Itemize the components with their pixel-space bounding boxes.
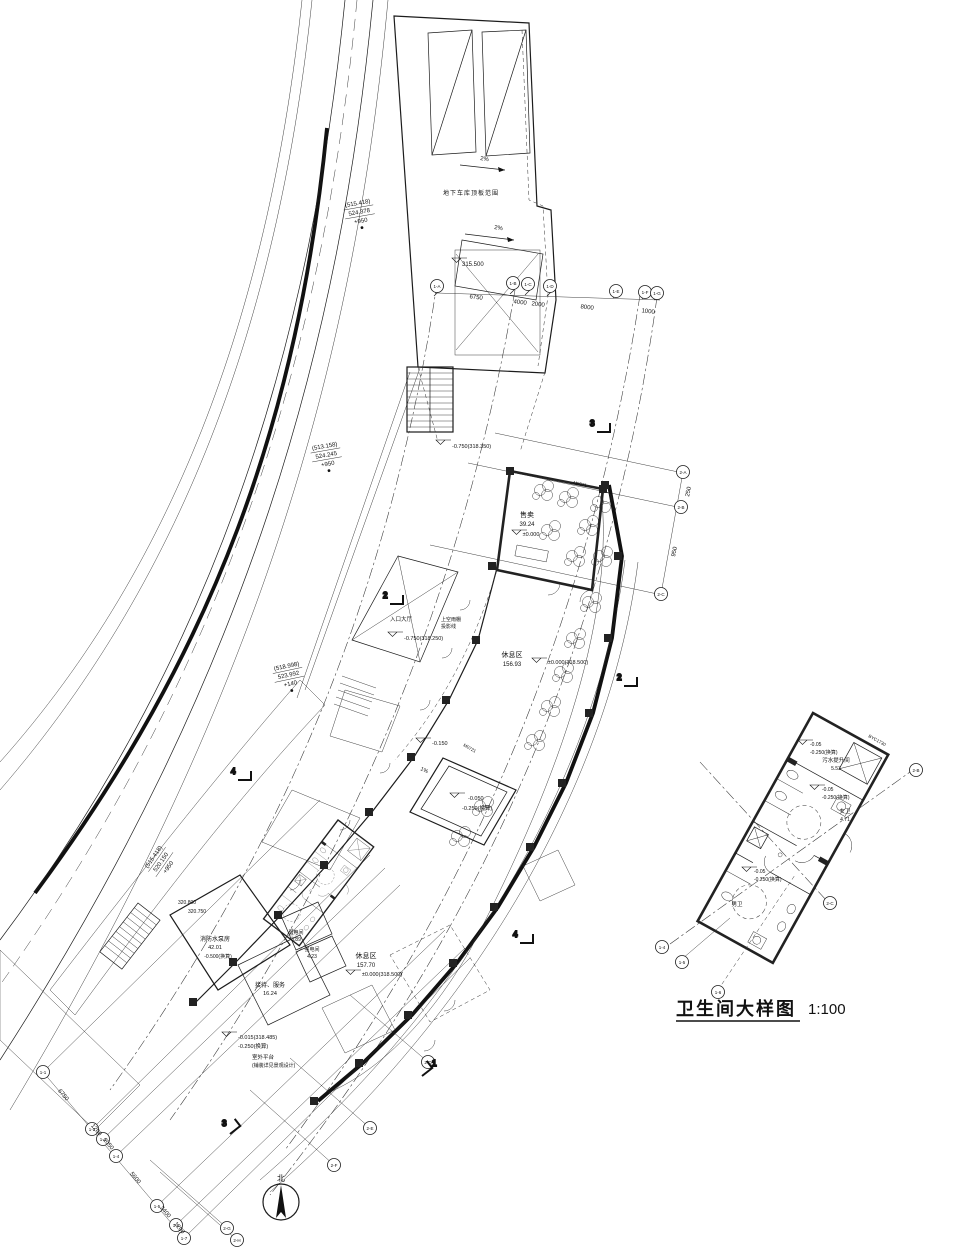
- axis-bubble-label: 1-D: [546, 284, 554, 289]
- dim-text: 950: [671, 546, 679, 558]
- section-number: 3: [590, 419, 595, 428]
- detail-title: 卫生间大样图: [676, 998, 796, 1019]
- dim-text: 6750: [469, 294, 484, 301]
- room-name: 污水提升间: [822, 756, 850, 764]
- level-label: 320.800: [178, 900, 196, 906]
- axis-bubble-label: 2-C: [826, 901, 834, 906]
- north-arrow: 北: [263, 1174, 299, 1220]
- site-plan-drawing: 1-A 1-B 1-C 1-D 1-E 1-F 1-G 6750 4000 20…: [0, 0, 960, 1258]
- axis-bubble-label: 1-4: [659, 945, 666, 950]
- axis-bubble-label: 1-1: [40, 1070, 47, 1075]
- room-name: 售卖: [520, 510, 534, 519]
- dim-text: 2400: [158, 1205, 172, 1220]
- level-label: -0.750(318.350): [452, 444, 491, 450]
- axis-bubble-label: 1-A: [433, 284, 440, 289]
- curved-road: [0, 0, 388, 1110]
- canopy-note: 投影线: [441, 623, 456, 630]
- room-level: ±0.000(318.500): [362, 972, 402, 978]
- detail-title-block: 卫生间大样图 1:100: [676, 998, 846, 1021]
- section-number: 3: [222, 1119, 227, 1128]
- garage-roof-block: [394, 16, 556, 452]
- level-label: -0.250(换算): [754, 876, 782, 883]
- section-markers: 3 2 2 4 4 1 3: [222, 419, 637, 1134]
- level-label: -0.05: [754, 869, 766, 875]
- room-name: 弱电间: [288, 929, 303, 936]
- canopy-note: 上空雨棚: [441, 616, 461, 623]
- axis-bubble-label: 1-E: [612, 289, 619, 294]
- axis-bubble-label: 2-H: [233, 1238, 240, 1243]
- slope-label: 2%: [480, 156, 490, 163]
- axis-bubble-label: 2-G: [223, 1226, 231, 1231]
- axis-bubble-label: 2-C: [657, 592, 665, 597]
- slope-label: 2%: [494, 225, 504, 232]
- axis-bubble-label: 1-4: [113, 1154, 120, 1159]
- north-needle: [276, 1185, 286, 1218]
- room-level: ±0.000: [523, 532, 540, 538]
- platform-note: 室外平台: [252, 1053, 275, 1061]
- room-area: 3.89: [291, 937, 301, 943]
- top-stair: [407, 367, 453, 432]
- level-label: -0.250(换算): [822, 794, 850, 801]
- dim-text: 8000: [580, 304, 595, 311]
- dim-text: 5600: [128, 1171, 142, 1186]
- columns: [189, 467, 622, 1105]
- level-label: -0.250(换算): [810, 749, 838, 756]
- road-label: +950: [321, 460, 336, 468]
- room-name: 女卫: [839, 807, 851, 815]
- axis-bubble-label: 1-7: [181, 1236, 188, 1241]
- level-label: -0.015(318.485): [238, 1035, 277, 1041]
- dim-text: 2000: [531, 301, 546, 308]
- room-area: 4.23: [307, 954, 317, 960]
- room-area: 157.70: [357, 963, 376, 969]
- north-label: 北: [277, 1174, 285, 1183]
- room-level: ±0.000(318.500): [548, 660, 588, 666]
- axis-bubble-label: 1-C: [524, 282, 532, 287]
- level-label: -0.150: [432, 741, 448, 747]
- slope-arrow-1: [460, 165, 505, 172]
- floor-plan-sheet: 1-A 1-B 1-C 1-D 1-E 1-F 1-G 6750 4000 20…: [0, 0, 960, 1258]
- axis-bubble-label: 2-E: [366, 1126, 373, 1131]
- room-level: -0.500(换算): [204, 953, 232, 960]
- axis-bubble-label: 1-5: [679, 960, 686, 965]
- dim-text: 1000: [641, 308, 656, 315]
- room-area: 5.53: [831, 766, 841, 772]
- slope-arrow-2: [465, 234, 514, 242]
- room-name: 休息区: [502, 650, 523, 659]
- room-area: 156.93: [503, 662, 522, 668]
- main-building: [100, 467, 622, 1105]
- slope-label: 1%: [419, 766, 429, 775]
- axis-grid-lines: [110, 283, 683, 1195]
- room-area: 39.24: [519, 522, 535, 528]
- axis-bubble-label: 2-B: [912, 768, 919, 773]
- top-dimension-chain: 1-A 1-B 1-C 1-D 1-E 1-F 1-G 6750 4000 20…: [431, 277, 664, 316]
- right-dimension-chain: 2-A 2-B 2-C 250 950: [655, 466, 694, 601]
- axis-bubble-label: 1-G: [653, 291, 661, 296]
- road-elevation-labels: (515.418) 524.378 +950 (513.158) 524.245…: [143, 198, 377, 881]
- toilet-detail: 2-B 2-C 1-4 1-5 1-6 污水提升间 5.53 女卫 4.71 男…: [656, 713, 923, 999]
- section-number: 2: [383, 591, 388, 600]
- level-label: -0.250(换算): [462, 804, 492, 812]
- axis-bubble-label: 1-6: [715, 990, 722, 995]
- level-label: 320.750: [188, 909, 206, 915]
- level-label: 315.500: [462, 262, 484, 268]
- level-label: -0.05: [822, 787, 834, 793]
- dim-text: 4000: [513, 299, 528, 306]
- paving-bands: [0, 680, 400, 1130]
- room-name: 男卫: [731, 901, 743, 908]
- road-label: +140: [283, 680, 298, 689]
- level-label: -0.050: [468, 796, 484, 802]
- section-number: 4: [231, 767, 236, 776]
- road-label: +950: [354, 217, 369, 225]
- axis-bubble-label: 2-B: [677, 505, 684, 510]
- room-name: 入口大厅: [390, 615, 413, 623]
- lower-stair: [100, 903, 160, 969]
- garage-note: 地下车库顶板范围: [443, 189, 499, 197]
- dim-text: 6750: [56, 1088, 70, 1103]
- room-area: 16.24: [263, 991, 277, 997]
- room-name: 强电间: [304, 946, 319, 953]
- axis-bubble-label: 2-F: [331, 1163, 338, 1168]
- axis-bubble-label: 2-A: [679, 470, 686, 475]
- level-label: -0.750(318.250): [404, 636, 443, 642]
- detail-scale: 1:100: [808, 1001, 846, 1018]
- room-name: 消防水泵房: [200, 935, 230, 943]
- room-area: 42.01: [208, 945, 222, 951]
- level-label: -0.05: [810, 742, 822, 748]
- level-label: -0.250(换算): [238, 1042, 268, 1050]
- section-number: 2: [617, 673, 622, 682]
- door-tag: M0721: [463, 743, 478, 754]
- room-name: 休息区: [356, 951, 377, 960]
- room-name: 接待、服务: [255, 981, 285, 989]
- section-number: 1: [432, 1059, 437, 1068]
- section-number: 4: [513, 930, 518, 939]
- platform-note: (铺装详见景观设计): [252, 1062, 296, 1069]
- dim-text: 250: [685, 486, 693, 498]
- room-area: 4.71: [840, 817, 850, 823]
- axis-bubble-label: 1-F: [642, 290, 649, 295]
- axis-bubble-label: 1-B: [509, 281, 516, 286]
